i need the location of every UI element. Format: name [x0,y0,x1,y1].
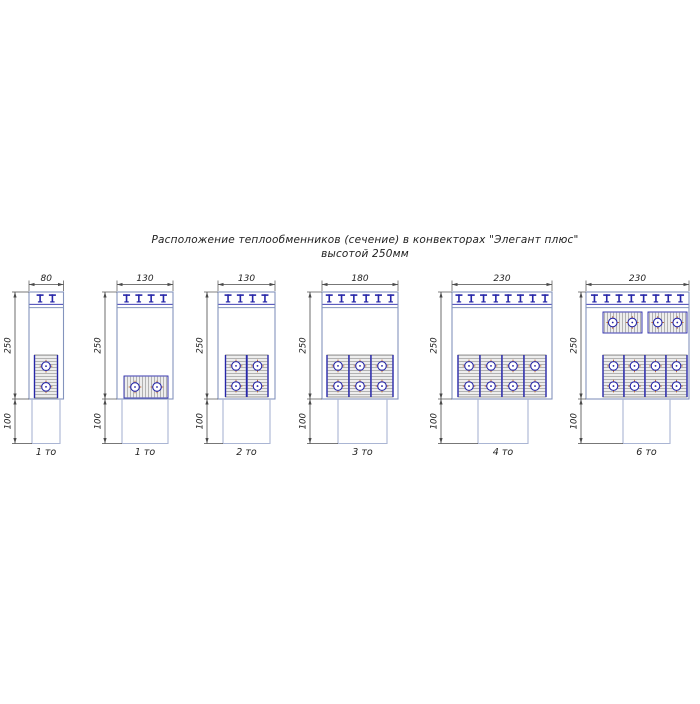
heat-exchanger-block [624,355,645,397]
count-label: 4 то [493,447,514,458]
heat-exchanger-block [458,355,480,397]
height-dim-label-100: 100 [94,413,104,429]
heat-exchanger-block [247,355,268,397]
width-dim-label: 80 [41,274,53,284]
count-label: 1 то [135,447,156,458]
heat-exchanger-block [648,312,687,333]
width-dim-label: 230 [493,274,510,284]
heat-exchanger-block [502,355,524,397]
diagram-1-то: 1302501001 то [94,274,174,458]
heat-exchanger-block [226,355,247,397]
diagram-4-то: 2302501004 то [430,274,553,458]
heat-exchanger-block [349,355,371,397]
count-label: 1 то [36,447,57,458]
heat-exchanger-block [124,376,168,398]
convector-tail [623,399,670,444]
heat-exchanger-block [524,355,546,397]
height-dim-label-100: 100 [299,413,309,429]
heat-exchanger-block [371,355,393,397]
convector-sections-drawing: 802501001 то1302501001 то1302501002 то18… [0,0,700,704]
height-dim-label-100: 100 [4,413,14,429]
height-dim-label-250: 250 [196,337,206,353]
width-dim-label: 180 [351,274,368,284]
heat-exchanger-block [480,355,502,397]
convector-tail [223,399,270,444]
height-dim-label-100: 100 [570,413,580,429]
heat-exchanger-block [603,355,624,397]
height-dim-label-250: 250 [430,337,440,353]
convector-drawing-svg: 802501001 то1302501001 то1302501002 то18… [0,0,700,700]
count-label: 6 то [636,447,657,458]
diagram-2-то: 1302501002 то [196,274,276,458]
heat-exchanger-block [645,355,666,397]
heat-exchanger-block [603,312,642,333]
diagram-6-то: 2302501006 то [570,274,690,458]
diagram-3-то: 1802501003 то [299,274,399,458]
height-dim-label-250: 250 [4,337,14,353]
height-dim-label-250: 250 [94,337,104,353]
diagram-1-то: 802501001 то [4,274,64,458]
convector-tail [478,399,528,444]
width-dim-label: 230 [629,274,646,284]
width-dim-label: 130 [238,274,255,284]
heat-exchanger-block [666,355,687,397]
heat-exchanger-block [327,355,349,397]
count-label: 3 то [352,447,373,458]
height-dim-label-250: 250 [570,337,580,353]
convector-tail [122,399,168,444]
heat-exchanger-block [35,355,58,398]
convector-tail [32,399,60,444]
height-dim-label-100: 100 [430,413,440,429]
width-dim-label: 130 [136,274,153,284]
count-label: 2 то [236,447,257,458]
height-dim-label-100: 100 [196,413,206,429]
height-dim-label-250: 250 [299,337,309,353]
convector-tail [338,399,387,444]
